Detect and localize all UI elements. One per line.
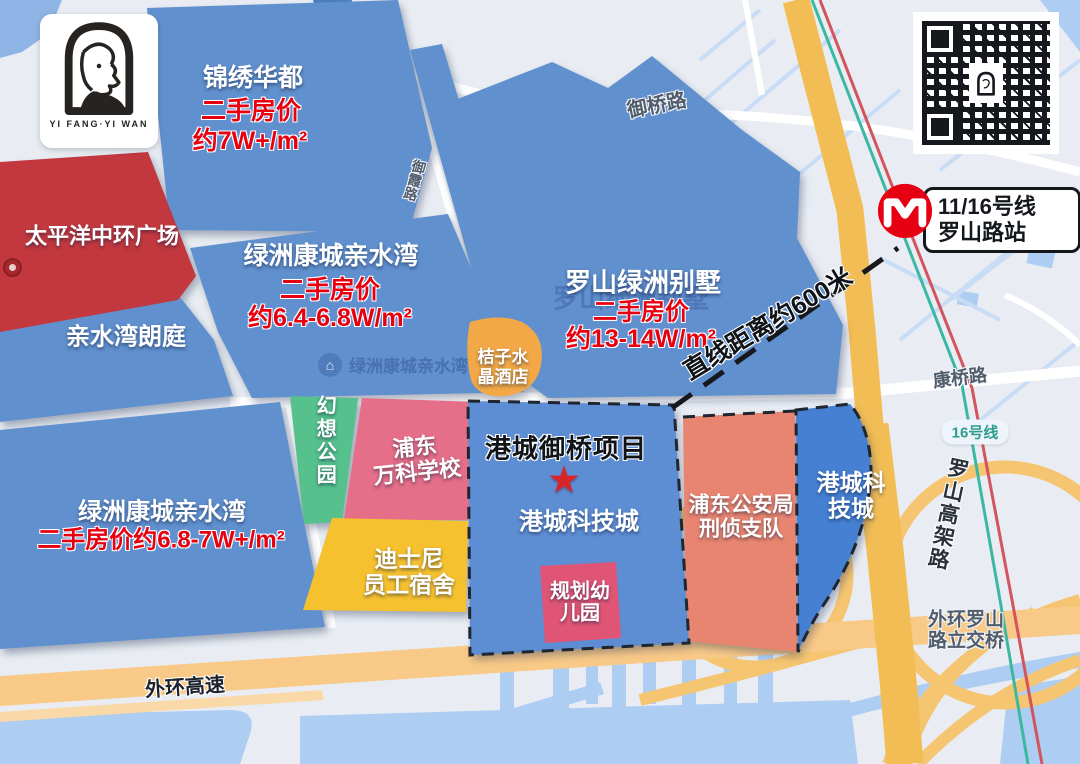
- road-label-interchange: 外环罗山 路立交桥: [928, 610, 1004, 653]
- label-jinxiu-price: 约7W+/m²: [193, 127, 308, 155]
- label-school: 浦东 万科学校: [370, 431, 463, 489]
- label-villa-price-label: 二手房价: [593, 300, 689, 327]
- label-oasis-top-price: 约6.4-6.8W/m²: [248, 304, 412, 332]
- project-star-icon: ★: [547, 460, 581, 503]
- label-langting: 亲水湾朗庭: [66, 325, 186, 352]
- brand-logo: YI FANG·YI WAN: [40, 14, 158, 148]
- metro-station-label: 罗山路站: [938, 220, 1072, 246]
- label-oasis-top-name: 绿洲康城亲水湾: [243, 242, 418, 270]
- map-poi-watermark: ⌂ 绿洲康城亲水湾: [318, 352, 468, 377]
- label-tech-right: 港城科 技城: [817, 470, 886, 522]
- label-oasis-top-price-label: 二手房价: [280, 276, 380, 304]
- label-park: 幻想公园: [313, 395, 335, 487]
- real-estate-map-poster: ⌂ 绿洲康城亲水湾 罗山绿洲别墅 锦绣华都 二手房价 约7W+/m² 太平洋中环…: [0, 0, 1080, 764]
- qr-center-logo: [969, 63, 1003, 103]
- qr-code: [913, 12, 1059, 154]
- map-poi-watermark-text: 绿洲康城亲水湾: [349, 352, 468, 377]
- qr-finder-icon: [922, 109, 958, 145]
- qr-pattern: [922, 21, 1050, 145]
- label-jinxiu-price-label: 二手房价: [201, 97, 301, 125]
- line16-badge: 16号线: [942, 420, 1009, 445]
- label-police: 浦东公安局 刑侦支队: [689, 493, 794, 540]
- brand-logo-text: YI FANG·YI WAN: [49, 119, 148, 129]
- metro-station-badge: 11/16号线 罗山路站: [923, 187, 1080, 253]
- qr-finder-icon: [922, 21, 958, 57]
- label-villa-price: 约13-14W/m²: [566, 325, 716, 353]
- label-oasis-bottom-price: 二手房价约6.8-7W+/m²: [37, 528, 284, 555]
- building-icon: ⌂: [318, 353, 342, 377]
- map-marker-icon: [3, 258, 22, 277]
- label-disney: 迪士尼 员工宿舍: [363, 546, 455, 598]
- label-villa-name: 罗山绿洲别墅: [565, 268, 721, 297]
- label-kindergarten: 规划幼 儿园: [550, 581, 610, 626]
- shanghai-metro-icon: [876, 182, 934, 240]
- face-arch-icon: [47, 14, 151, 118]
- metro-line-label: 11/16号线: [938, 194, 1072, 220]
- label-pacific: 太平洋中环广场: [25, 225, 179, 250]
- label-hotel: 桔子水 晶酒店: [478, 347, 529, 386]
- label-oasis-bottom-name: 绿洲康城亲水湾: [78, 500, 246, 527]
- label-jinxiu-name: 锦绣华都: [203, 64, 303, 92]
- label-project-name: 港城科技城: [519, 510, 639, 537]
